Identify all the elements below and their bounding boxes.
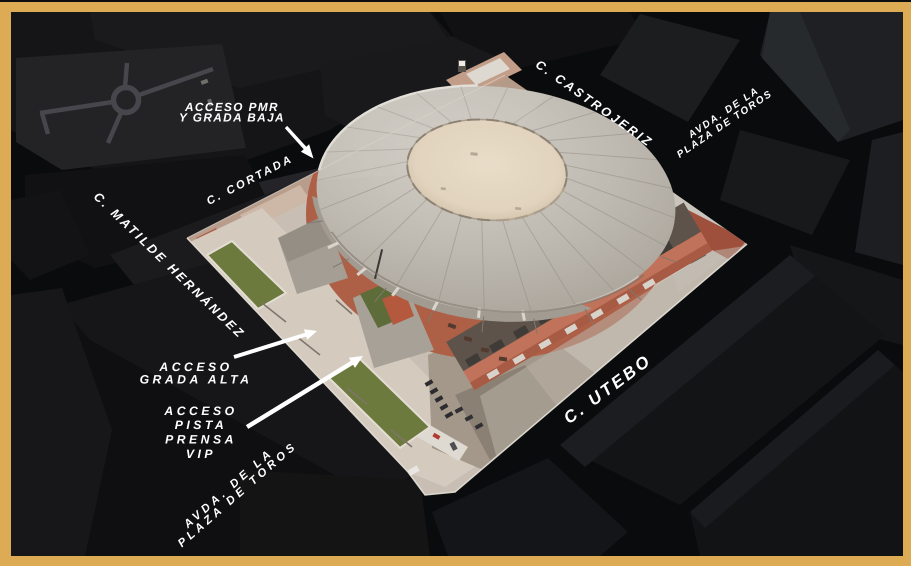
svg-text:PRENSA: PRENSA [165,433,237,447]
svg-text:VIP: VIP [186,447,216,461]
svg-text:ACCESO: ACCESO [163,404,237,418]
svg-text:GRADA ALTA: GRADA ALTA [140,373,253,387]
svg-text:Y GRADA BAJA: Y GRADA BAJA [179,111,285,125]
svg-text:PISTA: PISTA [175,418,228,432]
